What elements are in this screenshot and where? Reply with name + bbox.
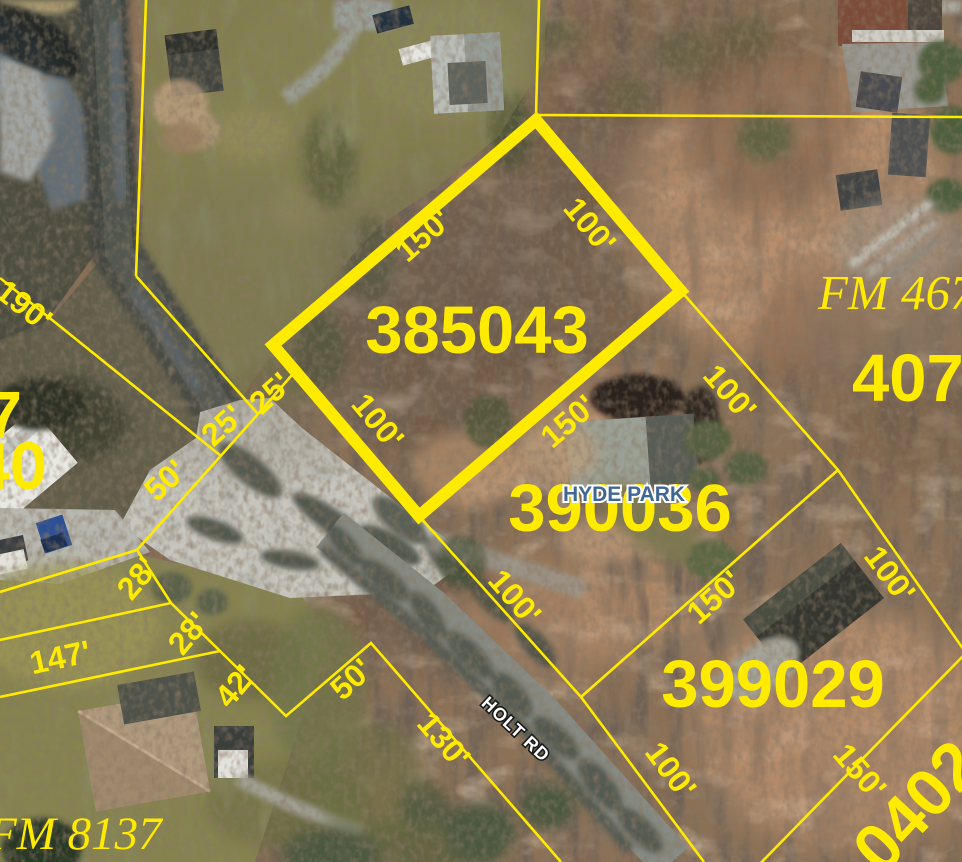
svg-text:HYDE PARK: HYDE PARK bbox=[563, 483, 685, 506]
svg-text:4075: 4075 bbox=[852, 341, 962, 416]
svg-text:FM 8137: FM 8137 bbox=[0, 808, 164, 860]
svg-text:7: 7 bbox=[0, 378, 22, 453]
svg-text:399029: 399029 bbox=[661, 647, 885, 722]
svg-text:385043: 385043 bbox=[365, 293, 589, 368]
svg-text:FM 467: FM 467 bbox=[817, 265, 962, 320]
